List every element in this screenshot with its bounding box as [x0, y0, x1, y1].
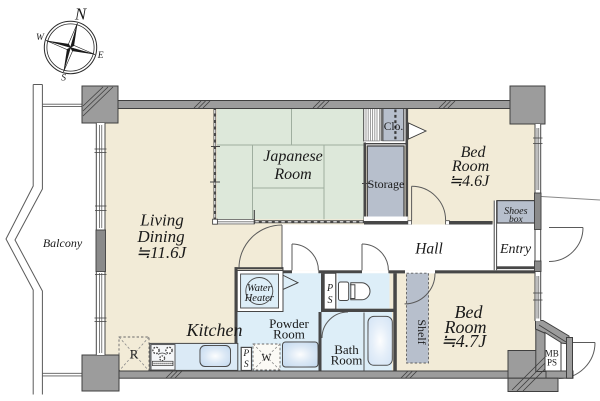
svg-text:Heater: Heater: [244, 293, 275, 304]
svg-text:Clo.: Clo.: [384, 121, 404, 133]
svg-text:S: S: [244, 360, 249, 370]
svg-text:Balcony: Balcony: [43, 236, 83, 250]
svg-text:Japanese: Japanese: [263, 148, 323, 165]
svg-text:≒4.7J: ≒4.7J: [441, 331, 488, 351]
svg-text:Room: Room: [273, 166, 311, 183]
svg-text:Kitchen: Kitchen: [186, 320, 243, 340]
svg-text:W: W: [262, 353, 272, 364]
svg-text:≒11.6J: ≒11.6J: [136, 243, 188, 262]
svg-text:P: P: [242, 349, 249, 359]
svg-text:R: R: [130, 347, 139, 361]
svg-text:P: P: [326, 283, 333, 294]
svg-text:Room: Room: [273, 326, 305, 341]
svg-text:Entry: Entry: [499, 242, 532, 257]
svg-text:W: W: [36, 33, 45, 43]
svg-text:E: E: [97, 51, 104, 61]
svg-text:N: N: [74, 5, 88, 24]
svg-text:Hall: Hall: [414, 241, 443, 258]
svg-text:PS: PS: [547, 357, 557, 367]
svg-text:Shelf: Shelf: [415, 319, 429, 344]
svg-text:Room: Room: [331, 353, 363, 368]
svg-text:≒4.6J: ≒4.6J: [449, 173, 490, 190]
svg-text:box: box: [509, 215, 524, 225]
svg-text:Storage: Storage: [368, 177, 405, 191]
svg-text:S: S: [328, 295, 333, 306]
svg-text:S: S: [61, 74, 66, 84]
